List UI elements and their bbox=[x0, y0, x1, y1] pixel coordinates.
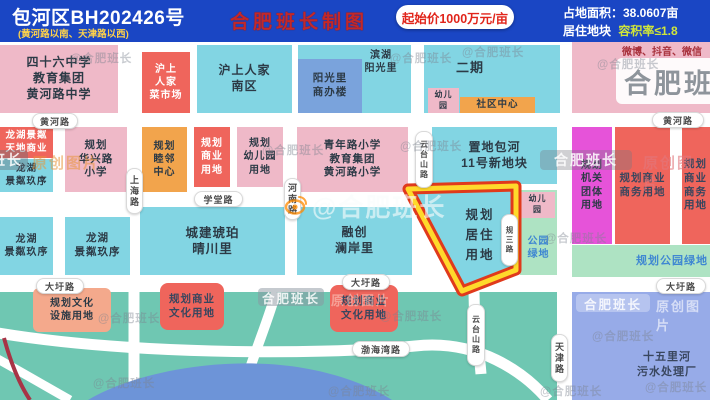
road-label-shanghai: 上海路 bbox=[126, 168, 143, 214]
weibo-icon bbox=[283, 192, 309, 223]
block-kindergarten-east: 幼儿 园 bbox=[520, 192, 555, 218]
header-bar: 包河区BH202426号 (黄河路以南、天津路以西) 合肥班长制图 起始价100… bbox=[0, 0, 710, 42]
block-commercial-plot: 规划 商业 用地 bbox=[194, 127, 230, 187]
handle-watermark-small: @合肥班长 bbox=[98, 310, 160, 326]
land-type-text: 居住地块 bbox=[563, 24, 611, 38]
handle-watermark-small: @合肥班长 bbox=[645, 379, 707, 395]
block-zhidi-baohe-11: 置地包河 11号新地块 bbox=[432, 127, 557, 184]
brand-suffix-watermark-left: 原创图片 bbox=[32, 152, 100, 173]
block-planned-park-green-strip: 规划公园绿地 bbox=[572, 245, 710, 277]
block-hushang-market: 沪上 人家 菜市场 bbox=[142, 52, 190, 113]
block-government-plot: 规划 机关 团体 用地 bbox=[572, 127, 612, 244]
road-label-huanghe-west: 黄河路 bbox=[32, 113, 78, 129]
brand-pill-watermark-left: 合肥班长 bbox=[0, 150, 28, 170]
handle-watermark-small: @合肥班长 bbox=[390, 50, 452, 66]
block-hushang-south: 沪上人家 南区 bbox=[197, 45, 292, 113]
road-label-tianjin: 天津路 bbox=[551, 334, 568, 382]
brand-suffix-watermark-southeast: 原创图片 bbox=[656, 296, 710, 334]
parcel-location-note: (黄河路以南、天津路以西) bbox=[18, 26, 129, 40]
brand-suffix-watermark-center: 原创图片 bbox=[331, 290, 391, 309]
handle-watermark-small: @合肥班长 bbox=[597, 56, 659, 72]
land-type-line: 居住地块 容积率≤1.8 bbox=[563, 22, 678, 39]
handle-watermark-small: @合肥班长 bbox=[380, 308, 442, 324]
block-community-center: 社区中心 bbox=[460, 97, 535, 113]
handle-watermark-small: @合肥班长 bbox=[462, 44, 524, 60]
road-label-dawei-west: 大圩路 bbox=[36, 278, 84, 294]
land-parcel-map-screenshot: 包河区BH202426号 (黄河路以南、天津路以西) 合肥班长制图 起始价100… bbox=[0, 0, 710, 400]
starting-price-badge: 起始价1000万元/亩 bbox=[396, 5, 514, 29]
road-label-bohaiwan: 渤海湾路 bbox=[352, 341, 410, 357]
handle-watermark-small: @合肥班长 bbox=[262, 142, 324, 158]
handle-watermark-small: @合肥班长 bbox=[70, 50, 132, 66]
road-label-guisan: 规三路 bbox=[501, 214, 518, 266]
block-longfor-residence-2: 龙湖 景粼玖序 bbox=[0, 217, 53, 275]
handle-watermark-small: @合肥班长 bbox=[328, 383, 390, 399]
block-business-culture-plot-1: 规划商业 文化用地 bbox=[160, 283, 224, 330]
brand-suffix-watermark-right: 原创图片 bbox=[643, 152, 710, 194]
road-label-yuntaishan-south: 云台山路 bbox=[467, 304, 485, 366]
block-qingnian-school: 青年路小学 教育集团 黄河路小学 bbox=[297, 127, 408, 192]
handle-watermark-small: @合肥班长 bbox=[400, 138, 462, 154]
block-kindergarten-north: 幼儿 园 bbox=[428, 88, 459, 113]
maker-watermark-title: 合肥班长制图 bbox=[230, 7, 368, 34]
road-label-huanghe-east: 黄河路 bbox=[652, 112, 704, 128]
road-label-dawei-middle: 大圩路 bbox=[342, 274, 390, 290]
block-hupo-qingchuanli: 城建琥珀 晴川里 bbox=[140, 207, 285, 275]
brand-pill-watermark-right: 合肥班长 bbox=[540, 150, 632, 170]
handle-watermark-small: @合肥班长 bbox=[545, 230, 607, 246]
road-label-xuetang: 学堂路 bbox=[194, 191, 243, 207]
road-label-dawei-east: 大圩路 bbox=[656, 278, 706, 294]
map-canvas: 四十六中学 教育集团 黄河路中学 沪上 人家 菜市场 沪上人家 南区 滨湖 阳光… bbox=[0, 42, 710, 400]
block-longfor-residence-3: 龙湖 景粼玖序 bbox=[65, 217, 130, 275]
land-area-text: 占地面积：38.0607亩 bbox=[563, 4, 678, 21]
handle-watermark-small: @合肥班长 bbox=[592, 328, 654, 344]
block-neighborhood-center: 规划 睦邻 中心 bbox=[142, 127, 187, 192]
floor-area-ratio-text: 容积率≤1.8 bbox=[618, 24, 677, 38]
brand-pill-watermark-southeast: 合肥班长 bbox=[576, 294, 650, 312]
handle-watermark-small: @合肥班长 bbox=[93, 375, 155, 391]
handle-watermark-large: @合肥班长 bbox=[312, 188, 446, 224]
handle-watermark-small: @合肥班长 bbox=[540, 383, 602, 399]
brand-pill-watermark-center: 合肥班长 bbox=[258, 288, 324, 306]
